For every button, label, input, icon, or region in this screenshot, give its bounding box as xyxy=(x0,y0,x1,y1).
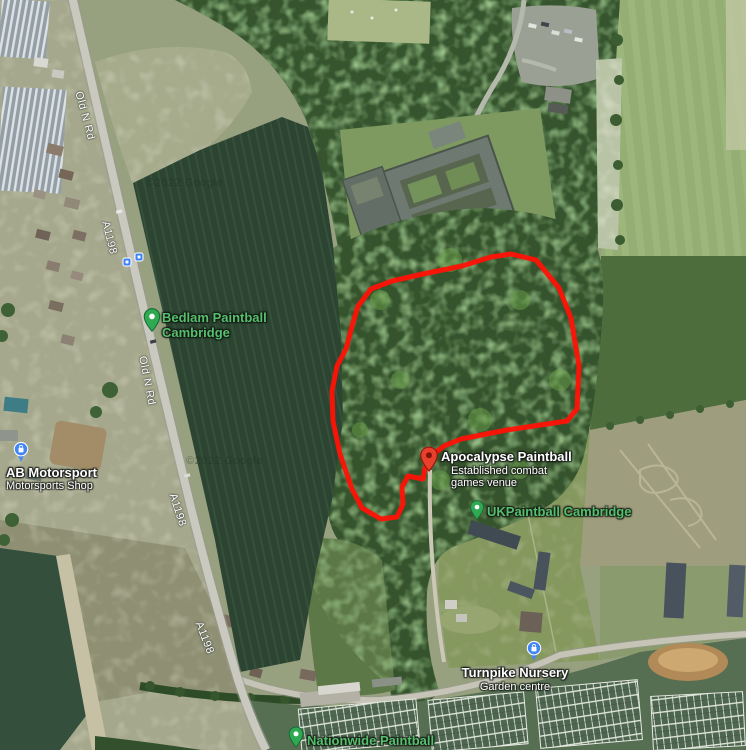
green-map-pin-icon xyxy=(470,500,484,520)
google-attribution: ©2022 Google xyxy=(146,177,223,189)
google-attribution: ©2022 Google xyxy=(186,455,263,467)
poi-label: UKPaintball Cambridge xyxy=(487,505,677,520)
bus-stop-icon[interactable] xyxy=(123,258,132,267)
poi-label: AB Motorsport xyxy=(6,466,156,481)
poi-label: Bedlam Paintball Cambridge xyxy=(162,311,284,340)
poi-subtitle: Motorsports Shop xyxy=(6,480,156,492)
blue-shopping-pin-icon xyxy=(13,441,30,463)
bus-stop-icon[interactable] xyxy=(135,253,144,262)
green-map-pin-icon xyxy=(144,308,161,332)
poi-subtitle: Garden centre xyxy=(435,681,595,693)
poi-subtitle: Established combat games venue xyxy=(451,465,565,489)
poi-label: Apocalypse Paintball xyxy=(441,450,611,465)
poi-label: Nationwide Paintball xyxy=(307,734,487,749)
satellite-map[interactable]: ©2022 Google ©2022 Google Old N Rd A1198… xyxy=(0,0,746,750)
poi-label: Turnpike Nursery xyxy=(435,666,595,681)
red-map-pin-icon xyxy=(420,446,438,472)
satellite-map-canvas[interactable] xyxy=(0,0,746,750)
green-map-pin-icon xyxy=(289,726,304,748)
blue-shopping-pin-icon xyxy=(526,640,543,662)
